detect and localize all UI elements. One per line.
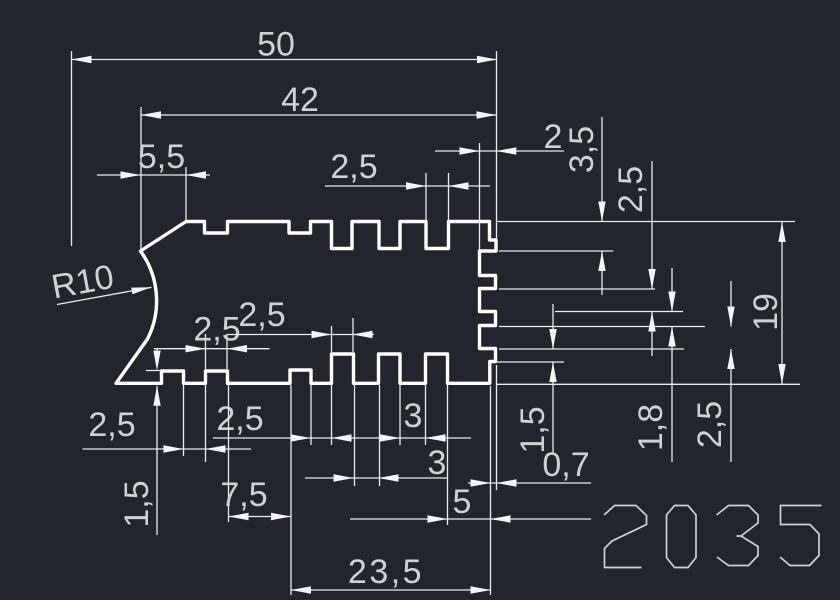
svg-text:3,5: 3,5 bbox=[563, 126, 601, 173]
svg-text:3: 3 bbox=[404, 397, 423, 435]
svg-text:3: 3 bbox=[428, 444, 447, 482]
svg-text:2,5: 2,5 bbox=[238, 296, 285, 334]
svg-text:42: 42 bbox=[281, 81, 319, 119]
svg-text:19: 19 bbox=[747, 293, 785, 331]
svg-text:1,8: 1,8 bbox=[632, 404, 670, 451]
svg-text:0,7: 0,7 bbox=[542, 446, 589, 484]
svg-text:2: 2 bbox=[544, 118, 563, 156]
svg-text:2,5: 2,5 bbox=[216, 400, 263, 438]
svg-text:2,5: 2,5 bbox=[88, 406, 135, 444]
svg-text:1,5: 1,5 bbox=[118, 480, 156, 527]
svg-text:2,5: 2,5 bbox=[612, 166, 650, 213]
svg-text:2,5: 2,5 bbox=[691, 401, 729, 448]
svg-text:7,5: 7,5 bbox=[220, 476, 267, 514]
svg-text:23,5: 23,5 bbox=[348, 553, 424, 591]
svg-text:5: 5 bbox=[453, 483, 472, 521]
svg-text:50: 50 bbox=[257, 26, 295, 64]
svg-text:5,5: 5,5 bbox=[138, 138, 185, 176]
svg-text:2,5: 2,5 bbox=[193, 311, 240, 349]
svg-text:2,5: 2,5 bbox=[330, 148, 377, 186]
